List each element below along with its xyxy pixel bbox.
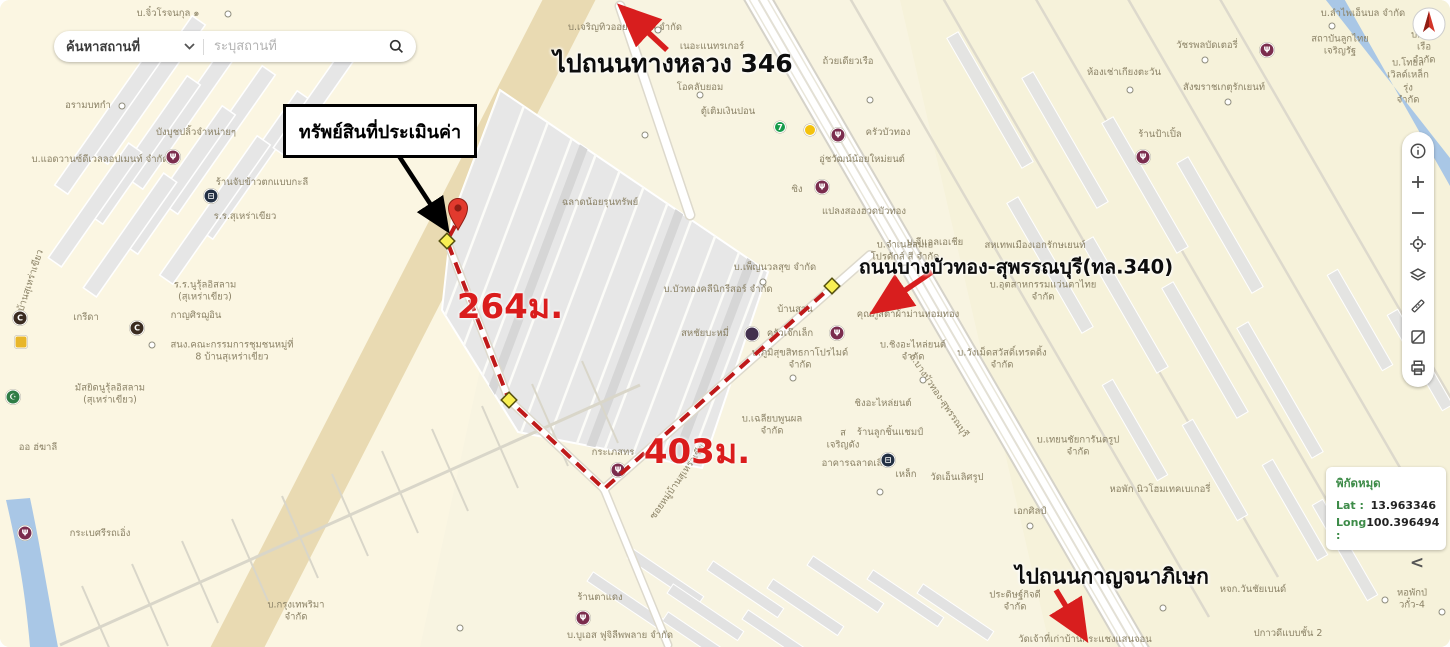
poi-dot-marker <box>697 92 704 99</box>
map-label: ห้องเช่าเกียงตะวัน <box>1087 67 1161 79</box>
map-label: ชิงอะไหล่ยนต์ <box>855 398 912 410</box>
search-bar[interactable]: ค้นหาสถานที่ <box>54 31 416 62</box>
map-labels-layer: บ.จิ๋วโรจนกุล ๑ร้านเสริมสวยมนาอรามบทกำบั… <box>0 0 1450 647</box>
map-label: ประดิษฐ์กิจดี จำกัด <box>989 590 1040 615</box>
restaurant-poi-icon: Ψ <box>576 611 591 626</box>
print-button[interactable] <box>1406 356 1430 380</box>
poi-dot-marker <box>760 279 767 286</box>
zoom-out-button[interactable] <box>1406 201 1430 225</box>
lat-row: Lat : 13.963346 <box>1336 499 1436 512</box>
seven-poi-icon: 7 <box>774 121 786 133</box>
shop-poi-icon <box>15 336 28 349</box>
map-label: เกรีดา <box>73 312 99 324</box>
search-category-dropdown[interactable]: ค้นหาสถานที่ <box>66 36 140 57</box>
map-label: ร.ร.นูรุ้ลอิสลาม (สุเหร่าเขียว) <box>174 280 237 305</box>
poi-dot-marker <box>1382 597 1389 604</box>
measure-button[interactable] <box>1406 294 1430 318</box>
map-label: ปกาวดีแบบชั้น 2 <box>1254 628 1323 640</box>
map-label: เหล็ก <box>895 469 916 481</box>
map-label: ร้านตาแดง <box>577 592 622 604</box>
map-label: หจก.วันชัยเบนด์ <box>1220 584 1286 596</box>
auto-poi-icon <box>745 327 760 342</box>
map-label: วัดเจ้าที่เก่าบ้านกระแชงแสนจอน <box>1018 634 1151 646</box>
map-label: บ.ภูมิสุขสิทธกาโปรไมด์ จำกัด <box>752 348 848 373</box>
coffee-poi-icon: C <box>130 321 145 336</box>
map-label: บ.กรุงเทพริมา จำกัด <box>267 600 324 625</box>
map-label: บ.บูเอส ฟูจิลีพพลาย จำกัด <box>567 630 673 642</box>
map-label: บ.วังเม็ดสวัสดิ์เทรดดิ้ง จำกัด <box>957 348 1046 373</box>
map-label: วัชรพลบัดเตอรี่ <box>1176 40 1237 52</box>
map-label: แปลงสองฮวดบัวทอง <box>822 206 906 218</box>
map-label: ตู้เติมเงินปอน <box>701 106 755 118</box>
poi-dot-marker <box>1027 523 1034 530</box>
poi-dot-marker <box>1329 23 1336 30</box>
map-label: คุณภูสิตาผ้าม่านหอมทอง <box>857 309 960 321</box>
restaurant-poi-icon: Ψ <box>830 326 845 341</box>
map-label: บ.เฉลียบพูนผล จำกัด <box>742 414 802 439</box>
map-label: มัสยิดนูรุ้ลอิสลาม (สุเหร่าเขียว) <box>75 383 145 408</box>
map-label: บ.แอดวานซ์ดีเวลลอปเมนท์ จำกัด <box>32 154 169 166</box>
map-label: บ.จิ๋วโรจนกุล ๑ <box>137 8 200 20</box>
map-label: ฉลาดน้อยรุนทรัพย์ <box>562 197 638 209</box>
map-label: ร.ร.สุเหร่าเขียว <box>214 211 277 223</box>
map-label: บ้านสวน <box>777 304 813 316</box>
restaurant-poi-icon: Ψ <box>831 128 846 143</box>
plus-icon <box>1409 173 1427 191</box>
map-label: ซิง <box>791 184 802 196</box>
map-label: ออ ฮ่ฆาลี <box>19 442 57 454</box>
restaurant-poi-icon: Ψ <box>1136 150 1151 165</box>
map-label: วัดเอ็นเลิศรูป <box>930 472 983 484</box>
coffee-poi-icon: C <box>13 311 28 326</box>
poi-dot-marker <box>790 375 797 382</box>
map-label: บ.เพ็ญนวลสุข จำกัด <box>734 262 816 274</box>
map-canvas[interactable]: บ.จิ๋วโรจนกุล ๑ร้านเสริมสวยมนาอรามบทกำบั… <box>0 0 1450 647</box>
ruler-icon <box>1409 297 1427 315</box>
poi-dot-marker <box>457 625 464 632</box>
restaurant-poi-icon: Ψ <box>166 150 181 165</box>
info-icon <box>1409 142 1427 160</box>
poi-dot-marker <box>655 27 662 34</box>
lat-label: Lat : <box>1336 499 1364 512</box>
map-label: สหเทพเมืองเอกรักษเยนท์ <box>984 240 1085 252</box>
long-value: 100.396494 <box>1366 516 1439 542</box>
transit-poi-icon: ⊟ <box>204 189 219 204</box>
map-label: บ.เจริญทิวออยล์ดีกรีส จำกัด <box>568 22 682 34</box>
poi-dot-marker <box>225 11 232 18</box>
map-label: บ.จำเนอสมเอ โปรดักส์ สี จำกัด <box>871 240 940 265</box>
pin-coordinates-card: พิกัดหมุด Lat : 13.963346 Long : 100.396… <box>1326 467 1446 550</box>
locate-button[interactable] <box>1406 232 1430 256</box>
poi-dot-marker <box>1202 57 1209 64</box>
map-label: สถาบันลูกไทย เจริญรัฐ <box>1311 34 1369 59</box>
poi-dot-marker <box>119 103 126 110</box>
compass-icon[interactable] <box>1410 5 1448 43</box>
poi-dot-marker <box>877 489 884 496</box>
map-label: เอกศิลป์ <box>1014 506 1047 518</box>
coordinates-title: พิกัดหมุด <box>1336 475 1436 493</box>
transit-poi-icon: ⊟ <box>881 453 896 468</box>
map-label: บ.อุตสาหกรรมแว่นตาไทย จำกัด <box>990 280 1097 305</box>
poi-dot-marker <box>642 132 649 139</box>
map-label: บ.เทยนชัยการันตรูป จำกัด <box>1037 435 1120 460</box>
basemap-icon <box>1409 328 1427 346</box>
restaurant-poi-icon: Ψ <box>611 463 626 478</box>
map-label: สนง.คณะกรรมการชุมชนหมู่ที่ 8 บ้านสุเหร่า… <box>170 340 293 365</box>
map-label: สังฆราชเกตุรักเยนท์ <box>1183 82 1265 94</box>
basemap-button[interactable] <box>1406 325 1430 349</box>
map-label: บังบูชปลิ้วจำหน่ายๆ <box>156 127 236 139</box>
map-label: อาคารฉลาดเลิศ <box>822 458 889 470</box>
map-label: ครัวบัวทอง <box>866 127 911 139</box>
map-label: สหชัยบะหมี่ <box>681 328 729 340</box>
map-label: กาญศิรฌูอิน <box>171 310 222 322</box>
chevron-down-icon[interactable] <box>184 43 195 50</box>
poi-dot-marker <box>867 97 874 104</box>
long-label: Long : <box>1336 516 1366 542</box>
search-input[interactable] <box>212 38 381 55</box>
map-label: บ.โทยลเวิลด์เหล็กรุ่ง จำกัด <box>1387 57 1429 106</box>
map-label: บ.จีแอลเอเชีย <box>907 237 963 249</box>
search-divider <box>203 39 204 55</box>
map-label: หอพัก นิวโฮมเทคเบเกอรี่ <box>1110 484 1211 496</box>
zoom-in-button[interactable] <box>1406 170 1430 194</box>
search-icon[interactable] <box>389 39 404 54</box>
map-label: ร้านป้าเปิ้ล <box>1138 129 1181 141</box>
poi-dot-marker <box>1160 605 1167 612</box>
property-label: ทรัพย์สินที่ประเมินค่า <box>299 117 461 146</box>
restaurant-poi-icon: Ψ <box>1260 43 1275 58</box>
map-label: ซอยหมู่บ้านสุเหร่าเขียว <box>648 438 712 522</box>
map-label: กระเภสทร <box>592 447 635 459</box>
poi-dot-marker <box>1127 87 1134 94</box>
poi-dot-marker <box>1439 609 1446 616</box>
fuel-poi-icon <box>804 124 816 136</box>
poi-dot-marker <box>1040 265 1047 272</box>
locate-icon <box>1409 235 1427 253</box>
map-label: กระเบศรีรถเอิ่ง <box>70 528 131 540</box>
restaurant-poi-icon: Ψ <box>18 526 33 541</box>
poi-dot-marker <box>149 342 156 349</box>
map-label: ส เจริญดัง <box>827 428 860 453</box>
poi-dot-marker <box>902 265 909 272</box>
map-label: ร้านจับข้าวตกแบบกะลี <box>216 177 308 189</box>
long-row: Long : 100.396494 <box>1336 516 1436 542</box>
map-controls <box>1402 132 1434 387</box>
lat-value: 13.963346 <box>1371 499 1436 512</box>
restaurant-poi-icon: Ψ <box>815 180 830 195</box>
map-label: บ.ลำไพเอ็นบล จำกัด <box>1321 8 1405 20</box>
poi-dot-marker <box>920 377 927 384</box>
minus-icon <box>1409 204 1427 222</box>
map-label: หอพักป่วกั๋ว-4 <box>1393 588 1431 613</box>
map-label: ร้านลูกชิ้นแชมป์ <box>857 427 923 439</box>
map-label: ถ้วยเดียวเรือ <box>822 56 873 68</box>
layers-button[interactable] <box>1406 263 1430 287</box>
property-label-box: ทรัพย์สินที่ประเมินค่า <box>283 104 477 158</box>
layers-icon <box>1409 266 1427 284</box>
map-label: เนอะแนทรเกอร์ <box>680 41 744 53</box>
map-label: อู่ชวัฒน์น้อยใหม่ยนต์ <box>819 154 905 166</box>
map-label: ครัวเจ๊กเล็ก <box>767 328 813 340</box>
mosque-poi-icon: ☪ <box>6 390 21 405</box>
map-label: บ.บัวทองคลีนิกรีสอร์ จำกัด <box>664 284 773 296</box>
map-label: ถ.บางบัวทอง-สุพรรณบุรี <box>905 352 970 440</box>
collapse-panel-chevron[interactable]: < <box>1404 550 1430 576</box>
poi-dot-marker <box>1225 99 1232 106</box>
map-label: อรามบทกำ <box>65 100 111 112</box>
map-label: บ.ชิงอะไหล่ยนต์ จำกัด <box>880 340 946 365</box>
printer-icon <box>1409 359 1427 377</box>
info-button[interactable] <box>1406 139 1430 163</box>
